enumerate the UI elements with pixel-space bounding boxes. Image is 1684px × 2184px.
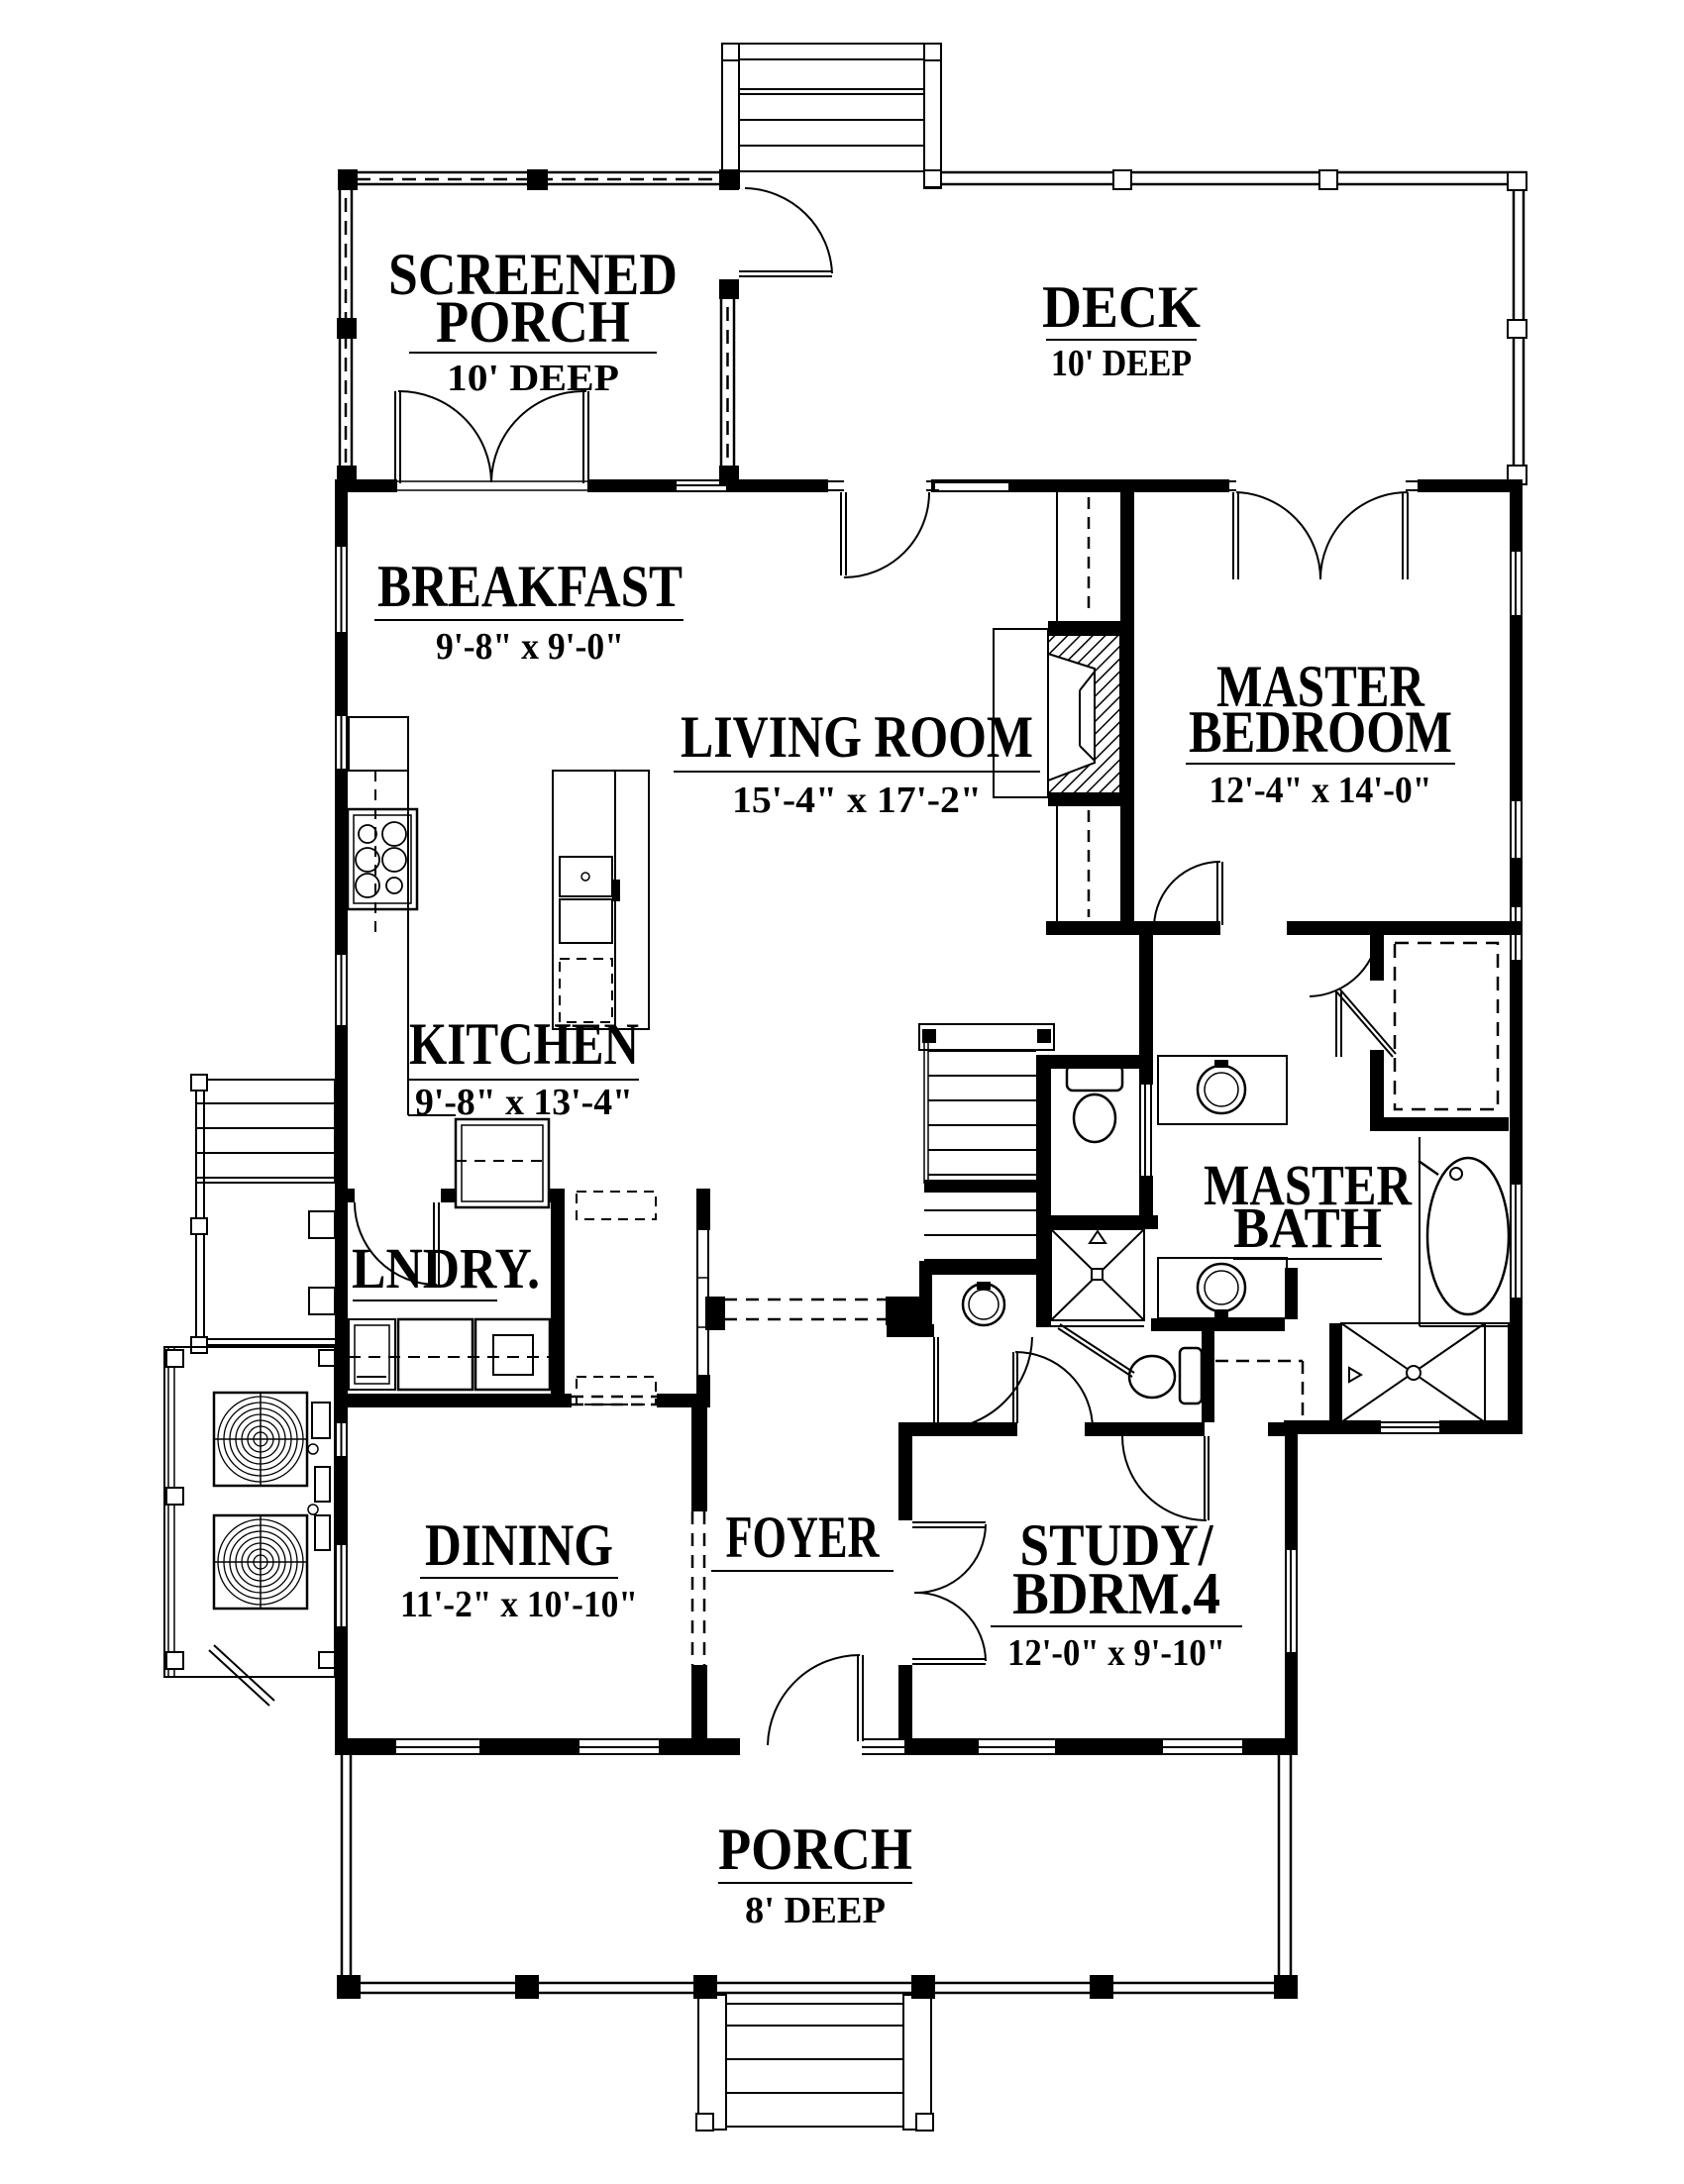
svg-text:BDRM.4: BDRM.4 (1012, 1561, 1220, 1626)
svg-text:FOYER: FOYER (726, 1505, 880, 1570)
svg-text:12'-0" x 9'-10": 12'-0" x 9'-10" (1007, 1632, 1225, 1674)
svg-text:BREAKFAST: BREAKFAST (377, 554, 683, 619)
svg-text:LIVING ROOM: LIVING ROOM (681, 704, 1033, 770)
svg-text:9'-8" x 9'-0": 9'-8" x 9'-0" (436, 626, 624, 668)
svg-text:11'-2" x 10'-10": 11'-2" x 10'-10" (400, 1584, 638, 1625)
svg-text:KITCHEN: KITCHEN (409, 1011, 639, 1077)
svg-text:PORCH: PORCH (718, 1817, 912, 1882)
svg-text:DECK: DECK (1042, 274, 1201, 340)
svg-text:9'-8" x 13'-4": 9'-8" x 13'-4" (415, 1082, 633, 1123)
svg-text:15'-4" x 17'-2": 15'-4" x 17'-2" (732, 780, 982, 821)
svg-text:12'-4" x 14'-0": 12'-4" x 14'-0" (1210, 770, 1432, 811)
svg-text:DINING: DINING (425, 1512, 613, 1578)
svg-text:PORCH: PORCH (436, 289, 630, 355)
svg-text:LNDRY.: LNDRY. (352, 1236, 540, 1300)
svg-text:BATH: BATH (1233, 1196, 1382, 1260)
svg-text:10' DEEP: 10' DEEP (447, 358, 619, 399)
svg-text:8' DEEP: 8' DEEP (745, 1890, 886, 1931)
svg-text:BEDROOM: BEDROOM (1189, 699, 1452, 765)
svg-text:10' DEEP: 10' DEEP (1051, 343, 1192, 384)
